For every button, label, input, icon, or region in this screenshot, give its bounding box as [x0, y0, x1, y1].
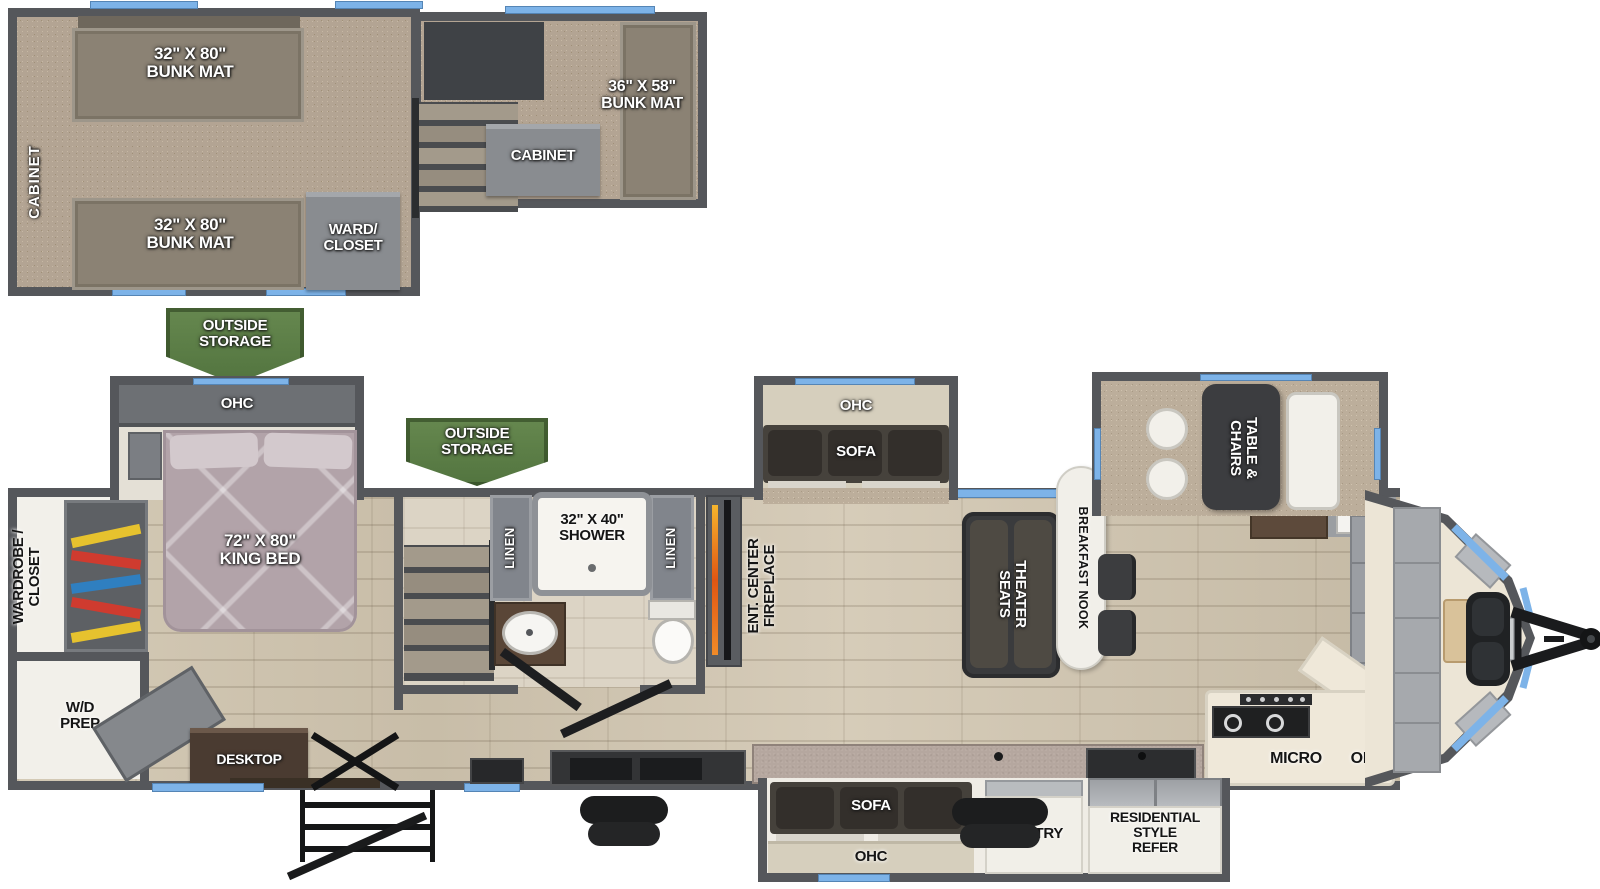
ward-closet-label: WARD/ CLOSET: [308, 222, 398, 254]
front-cap: [1348, 468, 1600, 812]
linen-left-label: LINEN: [503, 508, 519, 588]
sofa-armrest: [768, 481, 846, 488]
stair-tread: [404, 625, 494, 649]
bedroom-bath-wall: [394, 492, 403, 710]
desktop-label: DESKTOP: [192, 752, 306, 767]
hanging-clothes: [71, 524, 142, 548]
outside-storage-label-1: OUTSIDE STORAGE: [168, 318, 302, 350]
island-sink-basin: [640, 758, 702, 780]
bunk-mat-right-label: 36" X 58" BUNK MAT: [572, 78, 712, 113]
hanging-clothes: [71, 550, 142, 570]
toilet-tank: [648, 600, 696, 620]
propane-tank: [1472, 642, 1504, 680]
stove-knob-strip: [1240, 694, 1312, 705]
pillow: [169, 432, 258, 469]
sofa-armrest: [776, 834, 864, 841]
island-sink-basin: [570, 758, 632, 780]
entry-steps-frame: [300, 790, 435, 862]
sofa-armrest: [862, 481, 940, 488]
wardrobe-closet-label: WARDROBE / CLOSET: [11, 500, 49, 654]
stair-tread: [418, 104, 518, 124]
loft-stair-railing: [412, 98, 419, 218]
stove-knob: [1288, 697, 1293, 702]
stove-burner: [1224, 714, 1242, 732]
stair-tread: [404, 547, 494, 571]
loft-cabinet-box-label: CABINET: [488, 148, 598, 164]
sofa-slide-window: [795, 378, 915, 385]
hitch-coupler-center: [1587, 635, 1595, 643]
stove-cooktop: [1212, 706, 1310, 738]
fireplace-flame-strip: [712, 505, 718, 655]
loft-window-top-3: [505, 6, 655, 14]
micro-label: MICRO: [1256, 750, 1336, 767]
bath-wall-right: [696, 492, 705, 694]
storage-chest: [470, 758, 524, 784]
hanging-clothes: [71, 574, 142, 594]
bath-wall-bottom-1: [398, 685, 518, 694]
rear-sink-faucet: [1138, 752, 1146, 760]
dinette-chair: [1146, 458, 1188, 500]
dinette-window-top: [1200, 374, 1312, 381]
nook-chair: [1098, 554, 1136, 600]
entry-step-pad: [588, 822, 660, 846]
hanging-clothes: [71, 621, 142, 643]
bedroom-ohc-label: OHC: [119, 396, 355, 412]
breakfast-nook-label: BREAKFAST NOOK: [1073, 473, 1089, 663]
linen-right-label: LINEN: [664, 508, 680, 588]
cap-cabinets: [1394, 508, 1440, 772]
sink-faucet: [526, 629, 533, 636]
entry-step-pad: [952, 798, 1048, 826]
loft-stairwell-opening: [424, 22, 544, 100]
nightstand: [128, 432, 162, 480]
entry-step-bar: [305, 802, 430, 808]
main-window-bottom-2: [464, 783, 520, 792]
rear-slide-window: [818, 874, 890, 882]
entry-step-pad: [960, 824, 1040, 848]
stove-knob: [1246, 697, 1251, 702]
king-bed-label: 72" X 80" KING BED: [185, 532, 335, 569]
pillow: [263, 432, 352, 469]
main-window-top-1: [950, 489, 1058, 498]
stair-tread: [404, 599, 494, 623]
rear-sofa-label: SOFA: [770, 798, 972, 814]
wd-prep-wall-top: [17, 652, 149, 661]
table-chairs-label: TABLE & CHAIRS: [1223, 388, 1259, 508]
dinette-window-left: [1094, 428, 1101, 480]
main-stairs: [404, 545, 494, 681]
propane-tank: [1472, 598, 1504, 636]
stove-knob: [1274, 697, 1279, 702]
bed-slide-window: [193, 378, 289, 385]
rv-floorplan: 32" X 80" BUNK MAT 32" X 80" BUNK MAT CA…: [0, 0, 1600, 889]
loft-cabinet-side-label: CABINET: [27, 121, 47, 243]
loft-window-top-1: [90, 1, 198, 9]
toilet-bowl: [652, 618, 694, 664]
outside-storage-label-2: OUTSIDE STORAGE: [408, 426, 546, 458]
sofa-slide-sofa-label: SOFA: [763, 444, 949, 460]
wardrobe-shelving: [64, 500, 148, 652]
kitchen-island: [550, 750, 746, 786]
dinette-chair: [1146, 408, 1188, 450]
stove-knob: [1300, 697, 1305, 702]
hanging-clothes: [71, 597, 142, 619]
loft-window-top-2: [335, 1, 423, 9]
bunk-mat-bottom-label: 32" X 80" BUNK MAT: [110, 216, 270, 253]
stair-tread: [404, 651, 494, 677]
stair-tread: [404, 573, 494, 597]
stove-knob: [1260, 697, 1265, 702]
refrigerator-door-split: [1154, 780, 1157, 808]
stove-burner: [1266, 714, 1284, 732]
entry-step-bar: [305, 846, 430, 852]
counter-faucet: [994, 752, 1003, 761]
fireplace-label: ENT. CENTER FIREPLACE: [746, 500, 782, 672]
bunk-mat-top-label: 32" X 80" BUNK MAT: [110, 45, 270, 82]
sofa-slide-ohc-label: OHC: [763, 398, 949, 414]
sofa-slide-apron: [763, 488, 949, 504]
entry-step-pad: [580, 796, 668, 824]
rear-ohc-label: OHC: [768, 849, 974, 865]
refer-label: RESIDENTIAL STYLE REFER: [1088, 810, 1222, 855]
shower-label: 32" X 40" SHOWER: [534, 512, 650, 544]
tv-panel: [724, 500, 731, 660]
main-window-bottom-1: [152, 783, 264, 792]
shower-drain: [588, 564, 596, 572]
sofa-armrest: [878, 834, 966, 841]
nook-chair: [1098, 610, 1136, 656]
theater-seats-label: THEATER SEATS: [994, 529, 1028, 659]
dinette-bench: [1286, 392, 1340, 510]
